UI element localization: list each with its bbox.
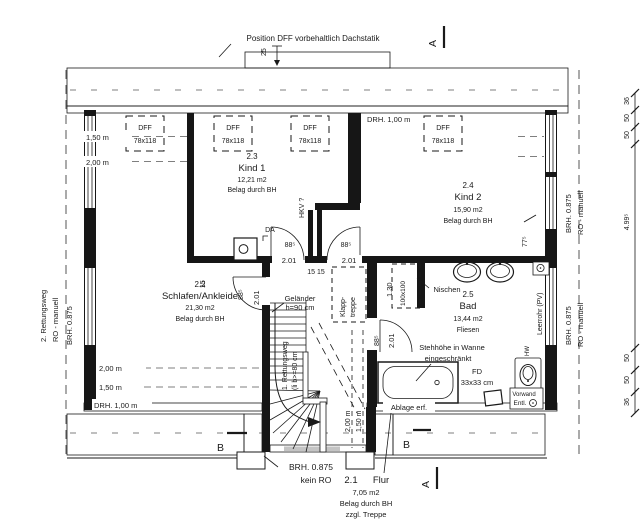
wall-kind1-kind2 (348, 113, 361, 203)
floor-plan-svg: DFF 78x118 DFF 78x118 DFF 78x118 DFF 78x… (0, 0, 641, 520)
svg-text:A: A (420, 481, 432, 488)
room-schlafen-name: Schlafen/Ankleide (162, 291, 238, 302)
chimney (234, 238, 257, 260)
chain-value-0: 36 (624, 97, 631, 105)
brh-right-upper-label: BRH. 0.875 (564, 194, 573, 233)
svg-text:RO - manuell: RO - manuell (51, 297, 60, 342)
entl-label: Entl. (513, 400, 526, 407)
niche-height-dim: 1.30 (385, 282, 394, 297)
wall-hall-north-a (187, 256, 272, 263)
window-77-dim: 77⁵ (522, 236, 529, 247)
leerrohr-label: Leerrohr (PV) (537, 293, 544, 335)
door-schlafen-width: 88⁵ (238, 289, 245, 300)
dormer-cheek-left (237, 452, 265, 469)
chain-value-1: 50 (624, 114, 631, 122)
dff-label-3: DFF (303, 125, 317, 132)
section-b-left-letter: B (217, 442, 224, 454)
ro-manuell-left-label: RO - manuell (51, 297, 60, 342)
wall-kind1-west (187, 113, 194, 263)
chain-value-5: 50 (624, 376, 631, 384)
svg-text:BRH. 0.875: BRH. 0.875 (564, 306, 573, 345)
fd-size-label: 33x33 cm (461, 378, 494, 387)
svg-text:Klapp-: Klapp- (340, 296, 347, 317)
svg-text:BRH. 0.875: BRH. 0.875 (564, 194, 573, 233)
vent-fixture (533, 262, 549, 275)
room-flur-area: 7,05 m2 (352, 488, 379, 497)
hw-label: HW (525, 346, 531, 356)
room-kind1-area: 12,21 m2 (237, 177, 266, 184)
wall-schlafen-east-lower (262, 305, 270, 452)
chain-value-6: 36 (624, 398, 631, 406)
door-kind2-width: 88⁵ (341, 242, 352, 249)
wall-spine-a (308, 210, 313, 263)
ro-right-lower-label: RO - manuell (576, 302, 585, 347)
chain-value-2: 50 (624, 131, 631, 139)
room-flur-name: Flur (373, 475, 389, 486)
svg-text:50: 50 (624, 354, 631, 362)
room-kind1-name: Kind 1 (239, 163, 266, 174)
svg-text:36: 36 (624, 398, 631, 406)
wall-niche-stub (417, 263, 425, 308)
wall-bad-west-lower (367, 350, 377, 407)
height-150-schlafen-label: 1,50 m (99, 383, 122, 392)
room-bad-number: 2.5 (462, 290, 474, 299)
hkv-label: HKV ? (299, 198, 306, 218)
svg-text:Leerrohr (PV): Leerrohr (PV) (537, 293, 544, 335)
wall-bad-north (360, 256, 557, 263)
top-note: Position DFF vorbehaltlich Dachstatik (247, 34, 381, 43)
stair-kein-ro-label: kein RO (301, 475, 332, 485)
drh-top-label: DRH. 1,00 m (367, 115, 410, 124)
door-kind2-clear: 2.01 (342, 256, 357, 265)
dormer-cheek-right (346, 452, 374, 469)
svg-text:HW: HW (525, 346, 531, 356)
gelaender-label-2: h=90 cm (286, 303, 315, 312)
stehhoehe-label-2: eingeschränkt (425, 354, 473, 363)
wall-bad-west-upper (367, 263, 377, 318)
svg-text:2. Rettungsweg: 2. Rettungsweg (39, 290, 48, 342)
floor-plan-page: DFF 78x118 DFF 78x118 DFF 78x118 DFF 78x… (0, 0, 641, 520)
svg-text:1,50 m: 1,50 m (356, 410, 363, 432)
svg-text:RO - manuell: RO - manuell (576, 190, 585, 235)
wall-15-15-dim: 15 15 (307, 269, 325, 276)
room-kind2-name: Kind 2 (455, 192, 482, 203)
svg-text:50: 50 (624, 114, 631, 122)
chain-value-4: 50 (624, 354, 631, 362)
svg-text:(li b>=80 cm: (li b>=80 cm (292, 351, 299, 390)
dff-size-4: 78x118 (432, 138, 455, 145)
svg-text:88⁵: 88⁵ (238, 289, 245, 300)
gelaender-label-1: Geländer (285, 294, 316, 303)
window-right-kind2-b (546, 177, 556, 229)
svg-text:1. Rettungsweg: 1. Rettungsweg (282, 341, 289, 390)
dormer-window-glass (284, 447, 340, 452)
height-150-stair-label: 1,50 m (356, 410, 363, 432)
svg-text:BRH. 0.875: BRH. 0.875 (65, 306, 74, 345)
stair-brh-label: BRH. 0.875 (289, 462, 333, 472)
nische-label: Nischen (433, 285, 460, 294)
height-150-top-label: 1,50 m (86, 133, 109, 142)
klapptreppe-label-1: Klapp- (340, 296, 347, 317)
door-kind1-clear: 2.01 (282, 256, 297, 265)
room-flur-note: Belag durch BH (340, 499, 393, 508)
svg-text:25: 25 (261, 48, 268, 56)
fd-label: FD (472, 367, 483, 376)
svg-text:2,00 m: 2,00 m (345, 410, 352, 432)
floor-drain-square (484, 390, 503, 406)
window-left-lower (85, 268, 95, 345)
svg-text:RO - manuell: RO - manuell (576, 302, 585, 347)
rettungsweg-left-label: 2. Rettungsweg (39, 290, 48, 342)
vorwand-label: Vorwand (512, 392, 535, 398)
svg-text:100x100: 100x100 (400, 281, 407, 306)
klapptreppe-label-2: treppe (350, 297, 357, 317)
svg-text:HKV ?: HKV ? (299, 198, 306, 218)
door-bad-width: 88⁵ (374, 335, 381, 346)
svg-text:2.01: 2.01 (387, 333, 396, 348)
section-b-right-letter: B (403, 439, 410, 451)
room-flur-number: 2.1 (344, 475, 357, 486)
section-a-top-letter: A (427, 40, 439, 47)
dim-25: 25 (261, 48, 268, 56)
svg-text:A: A (427, 40, 439, 47)
ablage-label: Ablage erf. (391, 403, 427, 412)
svg-text:15: 15 (200, 280, 207, 288)
brh-left-label: BRH. 0.875 (65, 306, 74, 345)
niche-size-dim: 100x100 (400, 281, 407, 306)
height-200-stair-label: 2,00 m (345, 410, 352, 432)
window-right-bad (546, 268, 556, 345)
rettungsweg-stair-label-2: (li b>=80 cm (292, 351, 299, 390)
svg-text:2.01: 2.01 (252, 290, 261, 305)
bathtub (378, 362, 458, 403)
svg-text:88⁵: 88⁵ (374, 335, 381, 346)
toilet (515, 358, 541, 391)
dff-size-3: 78x118 (299, 138, 322, 145)
rettungsweg-stair-label-1: 1. Rettungsweg (282, 341, 289, 390)
wall-15-dim: 15 (200, 280, 207, 288)
window-right-kind2-a (546, 115, 556, 172)
door-schlafen-clear: 2.01 (252, 290, 261, 305)
dff-label-4: DFF (436, 125, 450, 132)
room-kind2-note: Belag durch BH (443, 218, 492, 225)
room-bad-note: Fliesen (457, 327, 480, 334)
room-kind2-area: 15,90 m2 (453, 207, 482, 214)
height-200-top-label: 2,00 m (86, 158, 109, 167)
svg-text:4.99⁵: 4.99⁵ (624, 214, 631, 231)
da-label: DA (265, 227, 275, 234)
svg-text:treppe: treppe (350, 297, 357, 317)
svg-text:50: 50 (624, 131, 631, 139)
drh-bottom-label: DRH. 1,00 m (94, 401, 137, 410)
svg-text:1.30: 1.30 (385, 282, 394, 297)
room-kind2-number: 2.4 (462, 181, 474, 190)
room-kind1-note: Belag durch BH (227, 187, 276, 194)
svg-text:77⁵: 77⁵ (522, 236, 529, 247)
svg-text:50: 50 (624, 376, 631, 384)
stehhoehe-label-1: Stehhöhe in Wanne (419, 343, 485, 352)
brh-right-lower-label: BRH. 0.875 (564, 306, 573, 345)
wall-spine-b (317, 210, 322, 263)
dff-label-2: DFF (226, 125, 240, 132)
chain-value-3: 4.99⁵ (624, 214, 631, 231)
room-schlafen-note: Belag durch BH (175, 316, 224, 323)
door-bad-clear: 2.01 (387, 333, 396, 348)
room-bad-name: Bad (460, 301, 477, 312)
section-a-bottom-letter: A (420, 481, 432, 488)
door-kind1-width: 88⁵ (285, 242, 296, 249)
room-flur-note2: zzgl. Treppe (346, 510, 387, 519)
room-schlafen-area: 21,30 m2 (185, 305, 214, 312)
ro-right-upper-label: RO - manuell (576, 190, 585, 235)
stair-railing-vertical (303, 352, 308, 400)
dff-size-1: 78x118 (134, 138, 157, 145)
wall-kind2-jog (315, 203, 360, 210)
svg-text:36: 36 (624, 97, 631, 105)
room-bad-area: 13,44 m2 (453, 316, 482, 323)
dff-label-1: DFF (138, 125, 152, 132)
wall-dormer-east (366, 407, 376, 452)
room-kind1-number: 2.3 (246, 152, 258, 161)
stair-railing-lower (320, 402, 326, 452)
dff-size-2: 78x118 (222, 138, 245, 145)
height-200-schlafen-label: 2,00 m (99, 364, 122, 373)
wall-schlafen-east-upper (262, 263, 270, 277)
